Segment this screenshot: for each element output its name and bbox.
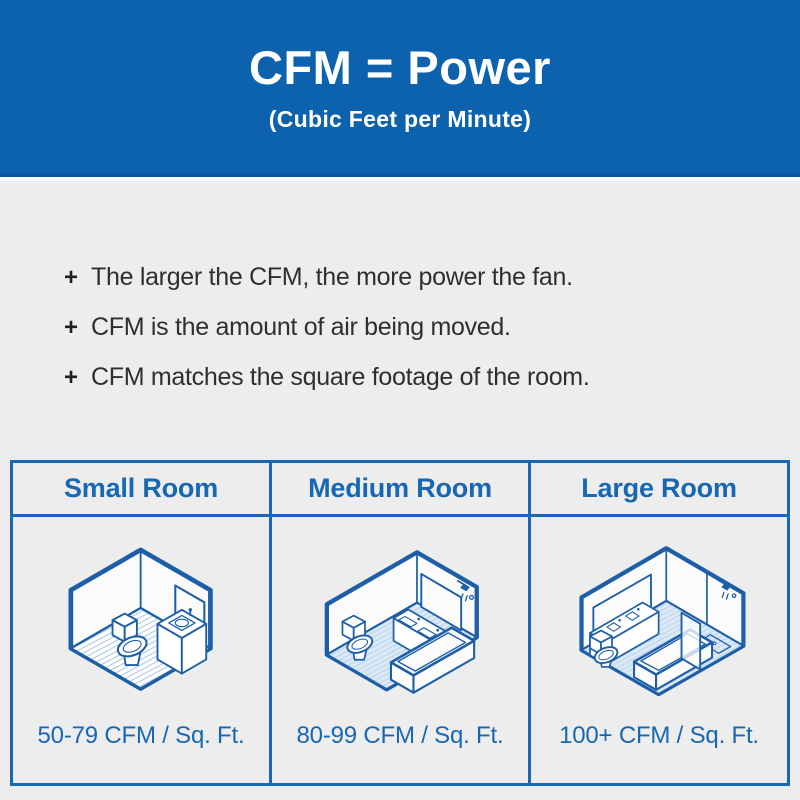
column-body: 50-79 CFM / Sq. Ft. (13, 517, 269, 783)
column-header: Small Room (13, 463, 269, 517)
bullet-item: + The larger the CFM, the more power the… (64, 263, 760, 292)
column-medium-room: Medium Room (272, 463, 531, 783)
cfm-label: 100+ CFM / Sq. Ft. (531, 722, 787, 750)
bullet-text: The larger the CFM, the more power the f… (91, 263, 573, 292)
column-large-room: Large Room (531, 463, 787, 783)
small-bathroom-isometric-icon (13, 517, 269, 722)
cfm-label: 80-99 CFM / Sq. Ft. (272, 722, 528, 750)
bullet-text: CFM matches the square footage of the ro… (91, 363, 589, 392)
bullet-plus-marker: + (64, 314, 91, 342)
bullet-text: CFM is the amount of air being moved. (91, 313, 511, 342)
large-bathroom-isometric-icon (531, 517, 787, 722)
medium-bathroom-isometric-icon (272, 517, 528, 722)
column-small-room: Small Room (13, 463, 272, 783)
column-body: 80-99 CFM / Sq. Ft. (272, 517, 528, 783)
bullet-list: + The larger the CFM, the more power the… (64, 263, 760, 392)
cfm-label: 50-79 CFM / Sq. Ft. (13, 722, 269, 750)
header-banner: CFM = Power (Cubic Feet per Minute) (0, 0, 800, 177)
column-body: 100+ CFM / Sq. Ft. (531, 517, 787, 783)
page-subtitle: (Cubic Feet per Minute) (269, 106, 531, 133)
glass-partition-icon (682, 612, 701, 669)
bullet-plus-marker: + (64, 264, 91, 292)
page-title: CFM = Power (249, 40, 551, 95)
column-header: Medium Room (272, 463, 528, 517)
comparison-table: Small Room (10, 460, 790, 786)
bullet-plus-marker: + (64, 364, 91, 392)
cfm-infographic: CFM = Power (Cubic Feet per Minute) + Th… (0, 0, 800, 800)
bullet-item: + CFM matches the square footage of the … (64, 363, 760, 392)
bullet-item: + CFM is the amount of air being moved. (64, 313, 760, 342)
column-header: Large Room (531, 463, 787, 517)
